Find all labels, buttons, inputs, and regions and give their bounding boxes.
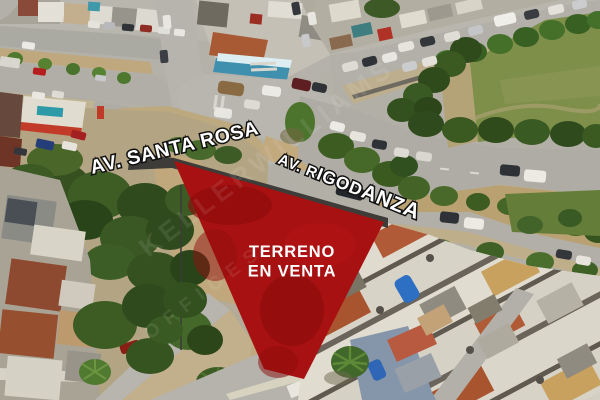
svg-text:EN VENTA: EN VENTA — [248, 263, 337, 281]
svg-text:TERRENO: TERRENO — [249, 243, 335, 261]
